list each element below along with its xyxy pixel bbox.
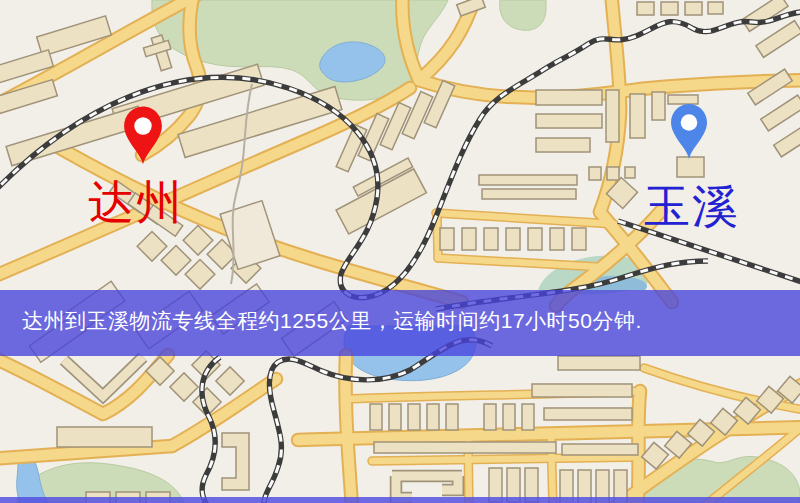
origin-pin-shape: [124, 107, 162, 165]
origin-pin[interactable]: [122, 104, 164, 168]
origin-pin-hole: [134, 117, 151, 134]
route-info-text: 达州到玉溪物流专线全程约1255公里，运输时间约17小时50分钟.: [22, 307, 642, 335]
map-canvas: [0, 0, 800, 503]
destination-pin-shape: [671, 104, 707, 159]
map-container: 达州 玉溪 达州到玉溪物流专线全程约1255公里，运输时间约17小时50分钟.: [0, 0, 800, 503]
route-info-banner: 达州到玉溪物流专线全程约1255公里，运输时间约17小时50分钟.: [0, 290, 800, 356]
destination-pin[interactable]: [669, 101, 709, 163]
destination-label: 玉溪: [644, 176, 740, 238]
destination-pin-hole: [681, 114, 698, 131]
bottom-banner-edge: [0, 497, 800, 503]
origin-label: 达州: [88, 172, 184, 234]
